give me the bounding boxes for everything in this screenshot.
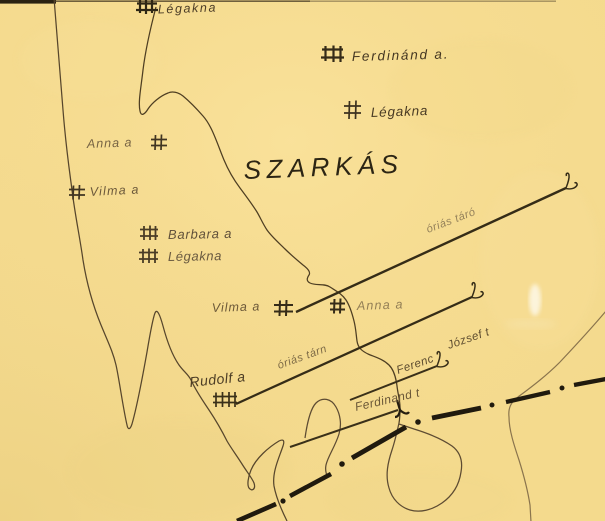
svg-text:Anna a: Anna a [86, 135, 133, 151]
svg-text:Légakna: Légakna [158, 0, 218, 16]
svg-text:Ferdinánd a.: Ferdinánd a. [352, 46, 450, 64]
svg-text:Anna a: Anna a [356, 297, 404, 313]
svg-text:Barbara a: Barbara a [168, 226, 233, 242]
svg-text:Légakna: Légakna [371, 103, 429, 120]
svg-text:Légakna: Légakna [168, 248, 222, 264]
svg-text:Vilma a: Vilma a [89, 182, 140, 199]
svg-text:SZARKÁS: SZARKÁS [243, 149, 404, 185]
svg-text:Vilma a: Vilma a [212, 299, 261, 315]
